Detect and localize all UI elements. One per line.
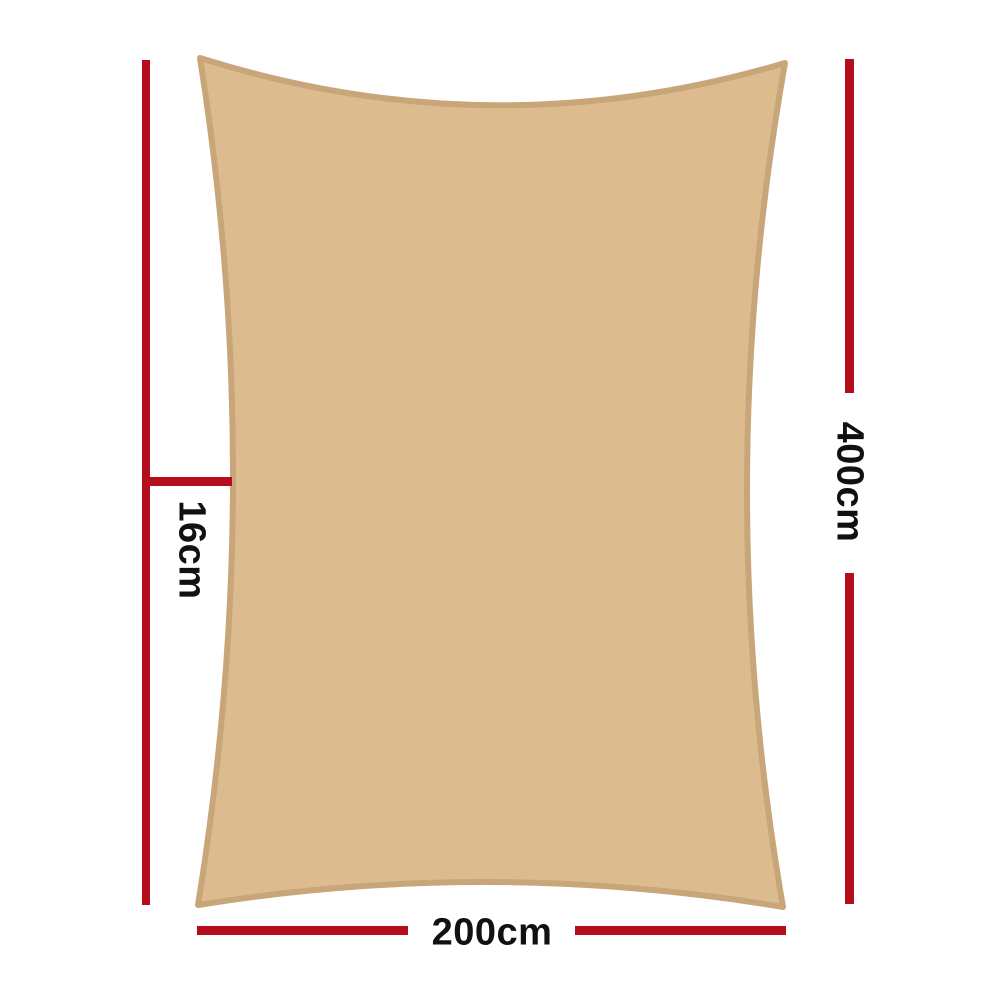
shade-sail-dimension-diagram: 16cm 400cm 200cm xyxy=(0,0,1000,1000)
shade-sail-shape xyxy=(198,58,785,907)
edge-drop-tick-line xyxy=(146,477,232,486)
width-label: 200cm xyxy=(432,912,553,955)
width-dimension-line-right xyxy=(575,926,786,935)
edge-drop-label: 16cm xyxy=(170,500,213,599)
height-dimension-line-bottom xyxy=(845,573,854,904)
height-dimension-line-top xyxy=(845,59,854,393)
height-label: 400cm xyxy=(828,422,871,543)
width-dimension-line-left xyxy=(197,926,408,935)
